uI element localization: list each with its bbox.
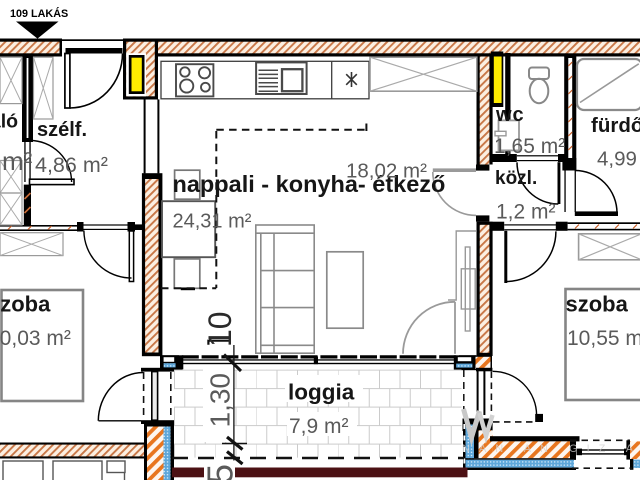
svg-text:109 LAKÁS: 109 LAKÁS	[10, 7, 68, 20]
svg-text:24,31 m²: 24,31 m²	[173, 211, 252, 233]
svg-text:10: 10	[202, 311, 238, 347]
svg-text:18,02 m²: 18,02 m²	[346, 160, 427, 183]
svg-text:közl.: közl.	[495, 168, 537, 189]
svg-text:szoba: szoba	[566, 292, 629, 317]
svg-text:10,03 m²: 10,03 m²	[0, 327, 71, 350]
svg-text:4,99: 4,99	[597, 148, 637, 171]
svg-text:4,86 m²: 4,86 m²	[35, 153, 108, 177]
svg-text:10,55 m²: 10,55 m²	[567, 327, 640, 350]
svg-text:1,65 m²: 1,65 m²	[494, 135, 565, 158]
svg-text:háló: háló	[0, 111, 18, 133]
svg-text:7,9 m²: 7,9 m²	[289, 415, 349, 438]
svg-text:m²: m²	[2, 146, 33, 176]
svg-text:NAN AN GIZ A: NAN AN GIZ A	[462, 443, 640, 455]
svg-text:szélf.: szélf.	[37, 119, 87, 141]
svg-text:1,2 m²: 1,2 m²	[496, 201, 556, 224]
svg-text:1,30: 1,30	[205, 373, 236, 428]
svg-text:5: 5	[200, 464, 241, 480]
svg-text:loggia: loggia	[288, 380, 355, 405]
svg-text:szoba: szoba	[0, 292, 51, 317]
svg-text:fürdő: fürdő	[591, 114, 640, 137]
svg-text:wc: wc	[495, 104, 525, 126]
